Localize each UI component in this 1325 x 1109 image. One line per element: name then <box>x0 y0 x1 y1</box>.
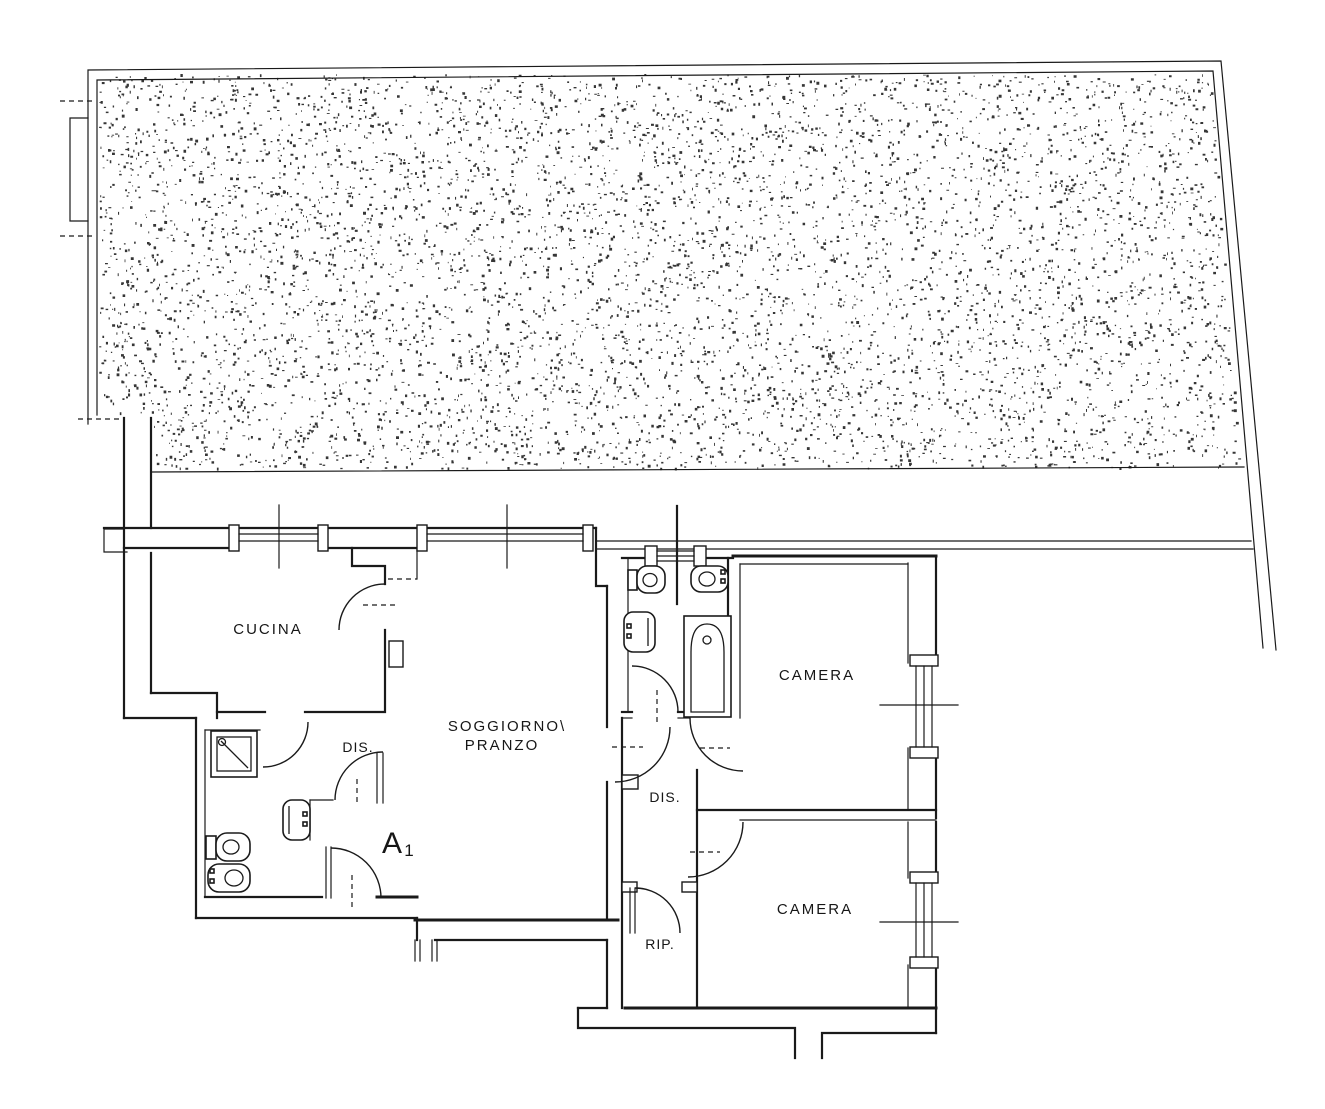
window-bedroom1 <box>880 655 958 758</box>
room-label-hall-left: DIS. <box>342 739 373 755</box>
window-kitchen <box>229 505 328 568</box>
toilet-mid-fixture <box>628 566 665 593</box>
room-label-living-1: SOGGIORNO\ <box>448 718 566 735</box>
room-label-bedroom2: CAMERA <box>777 901 853 918</box>
room-label-bedroom1: CAMERA <box>779 667 855 684</box>
washbasin-mid-fixture <box>624 612 655 652</box>
door-arc-living-kitchen <box>339 584 385 630</box>
terrace-stipple-texture <box>99 74 1241 471</box>
door-arc-lobby <box>263 722 308 767</box>
unit-label-number: 1 <box>404 841 413 860</box>
bidet-left-fixture <box>208 864 250 892</box>
washbasin-left-fixture <box>283 800 310 840</box>
door-arcs <box>263 584 743 933</box>
door-arc-storage <box>635 888 680 933</box>
window-living <box>417 505 593 568</box>
shower-fixture <box>211 731 257 777</box>
window-bedroom2 <box>880 872 958 968</box>
room-labels: CUCINA SOGGIORNO\ PRANZO DIS. DIS. RIP. … <box>233 621 855 952</box>
door-arc-bedroom1 <box>690 718 743 771</box>
bidet-mid-fixture <box>691 566 728 592</box>
room-label-living-2: PRANZO <box>465 737 540 754</box>
door-arc-living-hall <box>615 727 670 782</box>
floor-plan: CUCINA SOGGIORNO\ PRANZO DIS. DIS. RIP. … <box>0 0 1325 1109</box>
door-arc-unit-entrance <box>331 848 381 898</box>
unit-label-letter: A <box>382 827 402 860</box>
radiator-niche <box>389 641 403 667</box>
room-label-hall-mid: DIS. <box>649 789 680 805</box>
toilet-left-fixture <box>206 833 250 861</box>
room-label-kitchen: CUCINA <box>233 621 303 638</box>
door-arc-bathroom-mid <box>632 666 678 712</box>
bathtub-fixture <box>684 616 731 717</box>
terrace-border <box>60 61 1276 650</box>
room-label-storage: RIP. <box>645 936 674 952</box>
door-arc-bath-left <box>335 752 383 800</box>
